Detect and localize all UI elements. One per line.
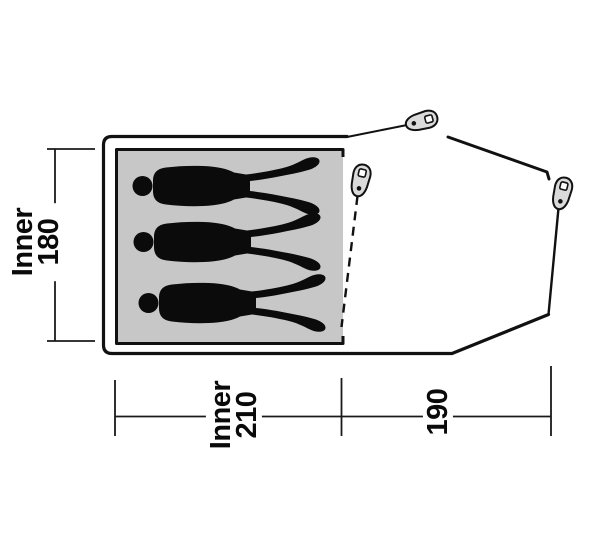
tent-right-edge [549, 208, 559, 315]
tent-peg-icon-top [404, 109, 440, 134]
dimension-label-190: 190 [423, 384, 453, 441]
tent-peg-icon-right [550, 176, 574, 211]
dimension-value-text: 190 [425, 389, 451, 436]
tent-peg-icon-door [349, 163, 373, 198]
tent-floorplan-diagram: Inner 180 Inner 210 190 [0, 0, 600, 554]
dimension-label-inner-180: Inner 180 [8, 203, 64, 281]
inner-door-dashed-line [342, 196, 358, 327]
vestibule-front-edge [448, 137, 549, 179]
dimension-value-text: 180 [36, 208, 62, 276]
dimension-value-text: 210 [234, 381, 260, 449]
guy-line-top [347, 125, 407, 137]
dimension-label-inner-210: Inner 210 [206, 376, 262, 454]
tent-floorplan-svg [0, 0, 600, 554]
